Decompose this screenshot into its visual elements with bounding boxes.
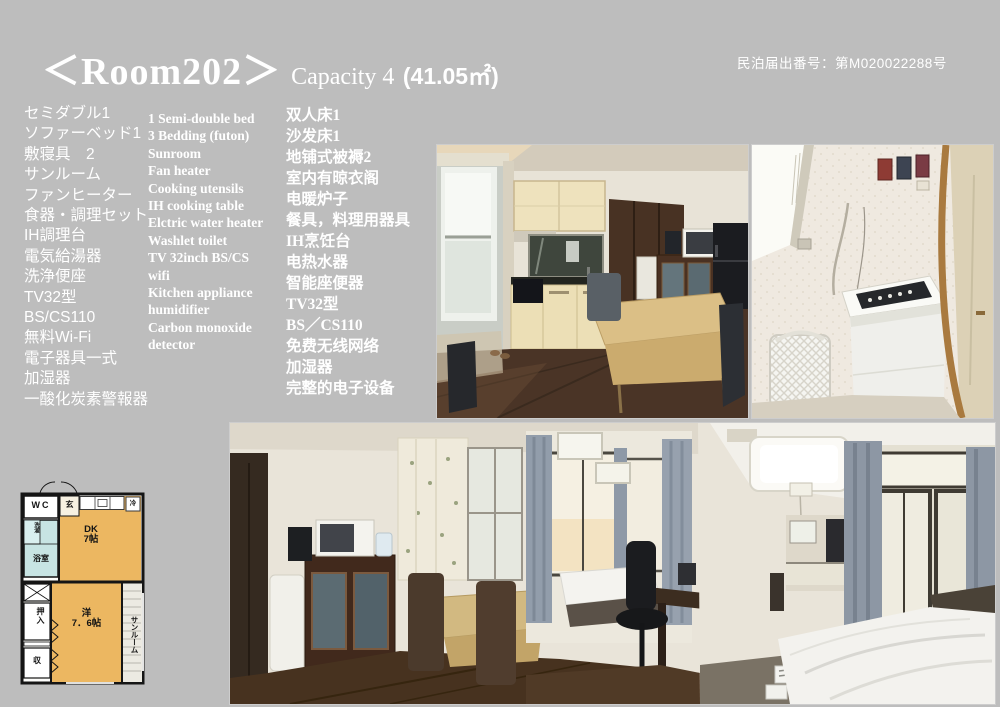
amenity-item-jp: 加湿器 — [24, 369, 148, 389]
amenity-item-en: Elctric water heater — [148, 214, 263, 231]
western-room — [51, 582, 122, 682]
black-chair — [447, 341, 477, 413]
photo-kitchen-dining — [437, 145, 748, 418]
amenity-item-jp: TV32型 — [24, 288, 148, 308]
info-papers — [766, 685, 787, 699]
pendant-light — [790, 483, 812, 496]
amenity-item-zh: 免费无线网络 — [286, 336, 410, 357]
amenity-item-jp: ファンヒーター — [24, 186, 148, 206]
amenity-item-jp: ソファーベッド1 — [24, 124, 148, 144]
floorplan-western-room-label: 洋 7．6帖 — [51, 609, 122, 629]
kitchen-photo-illustration — [437, 145, 748, 418]
room-number-title: ＜Room202＞ — [42, 51, 281, 93]
balcony-window — [437, 153, 509, 355]
washing-machine — [842, 276, 946, 403]
floor-plan: WC 玄 洗濯 浴室 冷 DK 7帖 押入 収 洋 7．6帖 サンルーム — [14, 481, 162, 703]
amenity-item-zh: 加湿器 — [286, 357, 410, 378]
registration-number: 民泊届出番号：第M020022288号 — [737, 52, 947, 72]
back-chair — [770, 573, 784, 611]
laundry-photo-illustration — [752, 145, 993, 418]
floorplan-wc-label: WC — [24, 501, 58, 510]
amenity-item-en: wifi — [148, 267, 263, 284]
small-white-cabinet — [637, 257, 657, 299]
amenity-item-en: Sunroom — [148, 145, 263, 162]
floorplan-sunroom-label: サンルーム — [126, 593, 138, 677]
page-title: ＜Room202＞Capacity 4 (41.05㎡) — [42, 40, 499, 95]
kettle — [376, 533, 392, 556]
amenity-item-en: detector — [148, 336, 263, 353]
amenity-item-en: Carbon monoxide — [148, 319, 263, 336]
amenity-item-en: Fan heater — [148, 162, 263, 179]
room-info-sheet: ＜Room202＞Capacity 4 (41.05㎡) 民泊届出番号：第M02… — [0, 0, 1000, 707]
amenity-item-jp: 電子器具一式 — [24, 349, 148, 369]
amenity-item-zh: 沙发床1 — [286, 126, 410, 147]
air-purifier — [270, 575, 304, 671]
coffee-maker — [288, 527, 312, 561]
floorplan-fridge-label: 冷 — [126, 501, 140, 508]
wall-tap — [798, 239, 811, 249]
amenity-item-en: 3 Bedding (futon) — [148, 127, 263, 144]
amenity-item-zh: 电暖炉子 — [286, 189, 410, 210]
photo-frame — [678, 563, 696, 585]
floorplan-closet-label: 押入 — [30, 607, 44, 625]
wc-door-arc — [40, 482, 55, 493]
kitchen-cart — [305, 555, 395, 670]
amenity-item-zh: 餐具，料理用器具 — [286, 210, 410, 231]
amenity-item-zh: IH烹饪台 — [286, 231, 410, 252]
kitchen-counter — [80, 497, 124, 510]
amenity-item-en: Cooking utensils — [148, 180, 263, 197]
amenity-item-en: Washlet toilet — [148, 232, 263, 249]
dark-chair — [719, 303, 745, 407]
amenity-item-jp: サンルーム — [24, 165, 148, 185]
amenity-item-zh: 完整的电子设备 — [286, 378, 410, 399]
amenity-item-zh: 地铺式被褥2 — [286, 147, 410, 168]
amenity-item-en: TV 32inch BS/CS — [148, 249, 263, 266]
capacity-label: Capacity 4 — [291, 64, 394, 90]
amenity-item-jp: 無料Wi-Fi — [24, 328, 148, 348]
door-hinge — [976, 311, 985, 315]
shoes — [500, 353, 510, 359]
hatched-cell — [24, 584, 50, 601]
amenity-item-jp: 洗浄便座 — [24, 267, 148, 287]
area-label: (41.05㎡) — [403, 63, 499, 89]
left-window — [468, 448, 522, 580]
gray-curtain-right — [844, 441, 882, 635]
living-room-photo-illustration — [230, 423, 995, 704]
floorplan-entrance-label: 玄 — [60, 501, 79, 509]
amenities-japanese: セミダブル1ソファーベッド1敷寝具 2サンルームファンヒーター食器・調理セットI… — [24, 104, 148, 410]
floorplan-bath-label: 浴室 — [24, 555, 58, 563]
amenity-item-jp: 敷寝具 2 — [24, 145, 148, 165]
amenity-item-jp: 電気給湯器 — [24, 247, 148, 267]
stove — [513, 279, 543, 303]
entrance-door-arc — [61, 482, 77, 493]
amenity-item-zh: TV32型 — [286, 294, 410, 315]
amenity-item-zh: 智能座便器 — [286, 273, 410, 294]
amenities-chinese: 双人床1沙发床1地铺式被褥2室内有晾衣阁电暖炉子餐具，料理用器具IH烹饪台电热水… — [286, 105, 410, 399]
floorplan-dk-label: DK 7帖 — [60, 525, 122, 545]
microwave-left — [316, 520, 374, 556]
audio-player — [665, 231, 681, 254]
amenity-item-en: IH cooking table — [148, 197, 263, 214]
shoes — [490, 350, 500, 356]
gray-chair — [587, 273, 621, 321]
amenity-item-jp: IH調理台 — [24, 226, 148, 246]
amenity-item-en: Kitchen appliance — [148, 284, 263, 301]
gray-curtain — [526, 435, 552, 623]
amenity-item-zh: 室内有晾衣阁 — [286, 168, 410, 189]
floorplan-storage-label: 収 — [24, 657, 50, 665]
photo-living-room — [230, 423, 995, 704]
amenity-item-jp: 食器・調理セット — [24, 206, 148, 226]
amenity-item-jp: 一酸化炭素警報器 — [24, 390, 148, 410]
amenity-item-en: humidifier — [148, 301, 263, 318]
photo-laundry — [752, 145, 993, 418]
floor-plan-drawing — [14, 481, 162, 703]
floral-curtain — [398, 438, 468, 580]
amenity-item-zh: BS／CS110 — [286, 315, 410, 336]
amenity-item-zh: 双人床1 — [286, 105, 410, 126]
laundry-basket — [770, 332, 830, 407]
amenity-item-jp: BS/CS110 — [24, 308, 148, 328]
amenities-english: 1 Semi-double bed3 Bedding (futon)Sunroo… — [148, 110, 263, 354]
amenity-item-zh: 电热水器 — [286, 252, 410, 273]
amenity-item-en: 1 Semi-double bed — [148, 110, 263, 127]
floorplan-laundry-label: 洗濯 — [26, 522, 38, 533]
amenity-item-jp: セミダブル1 — [24, 104, 148, 124]
